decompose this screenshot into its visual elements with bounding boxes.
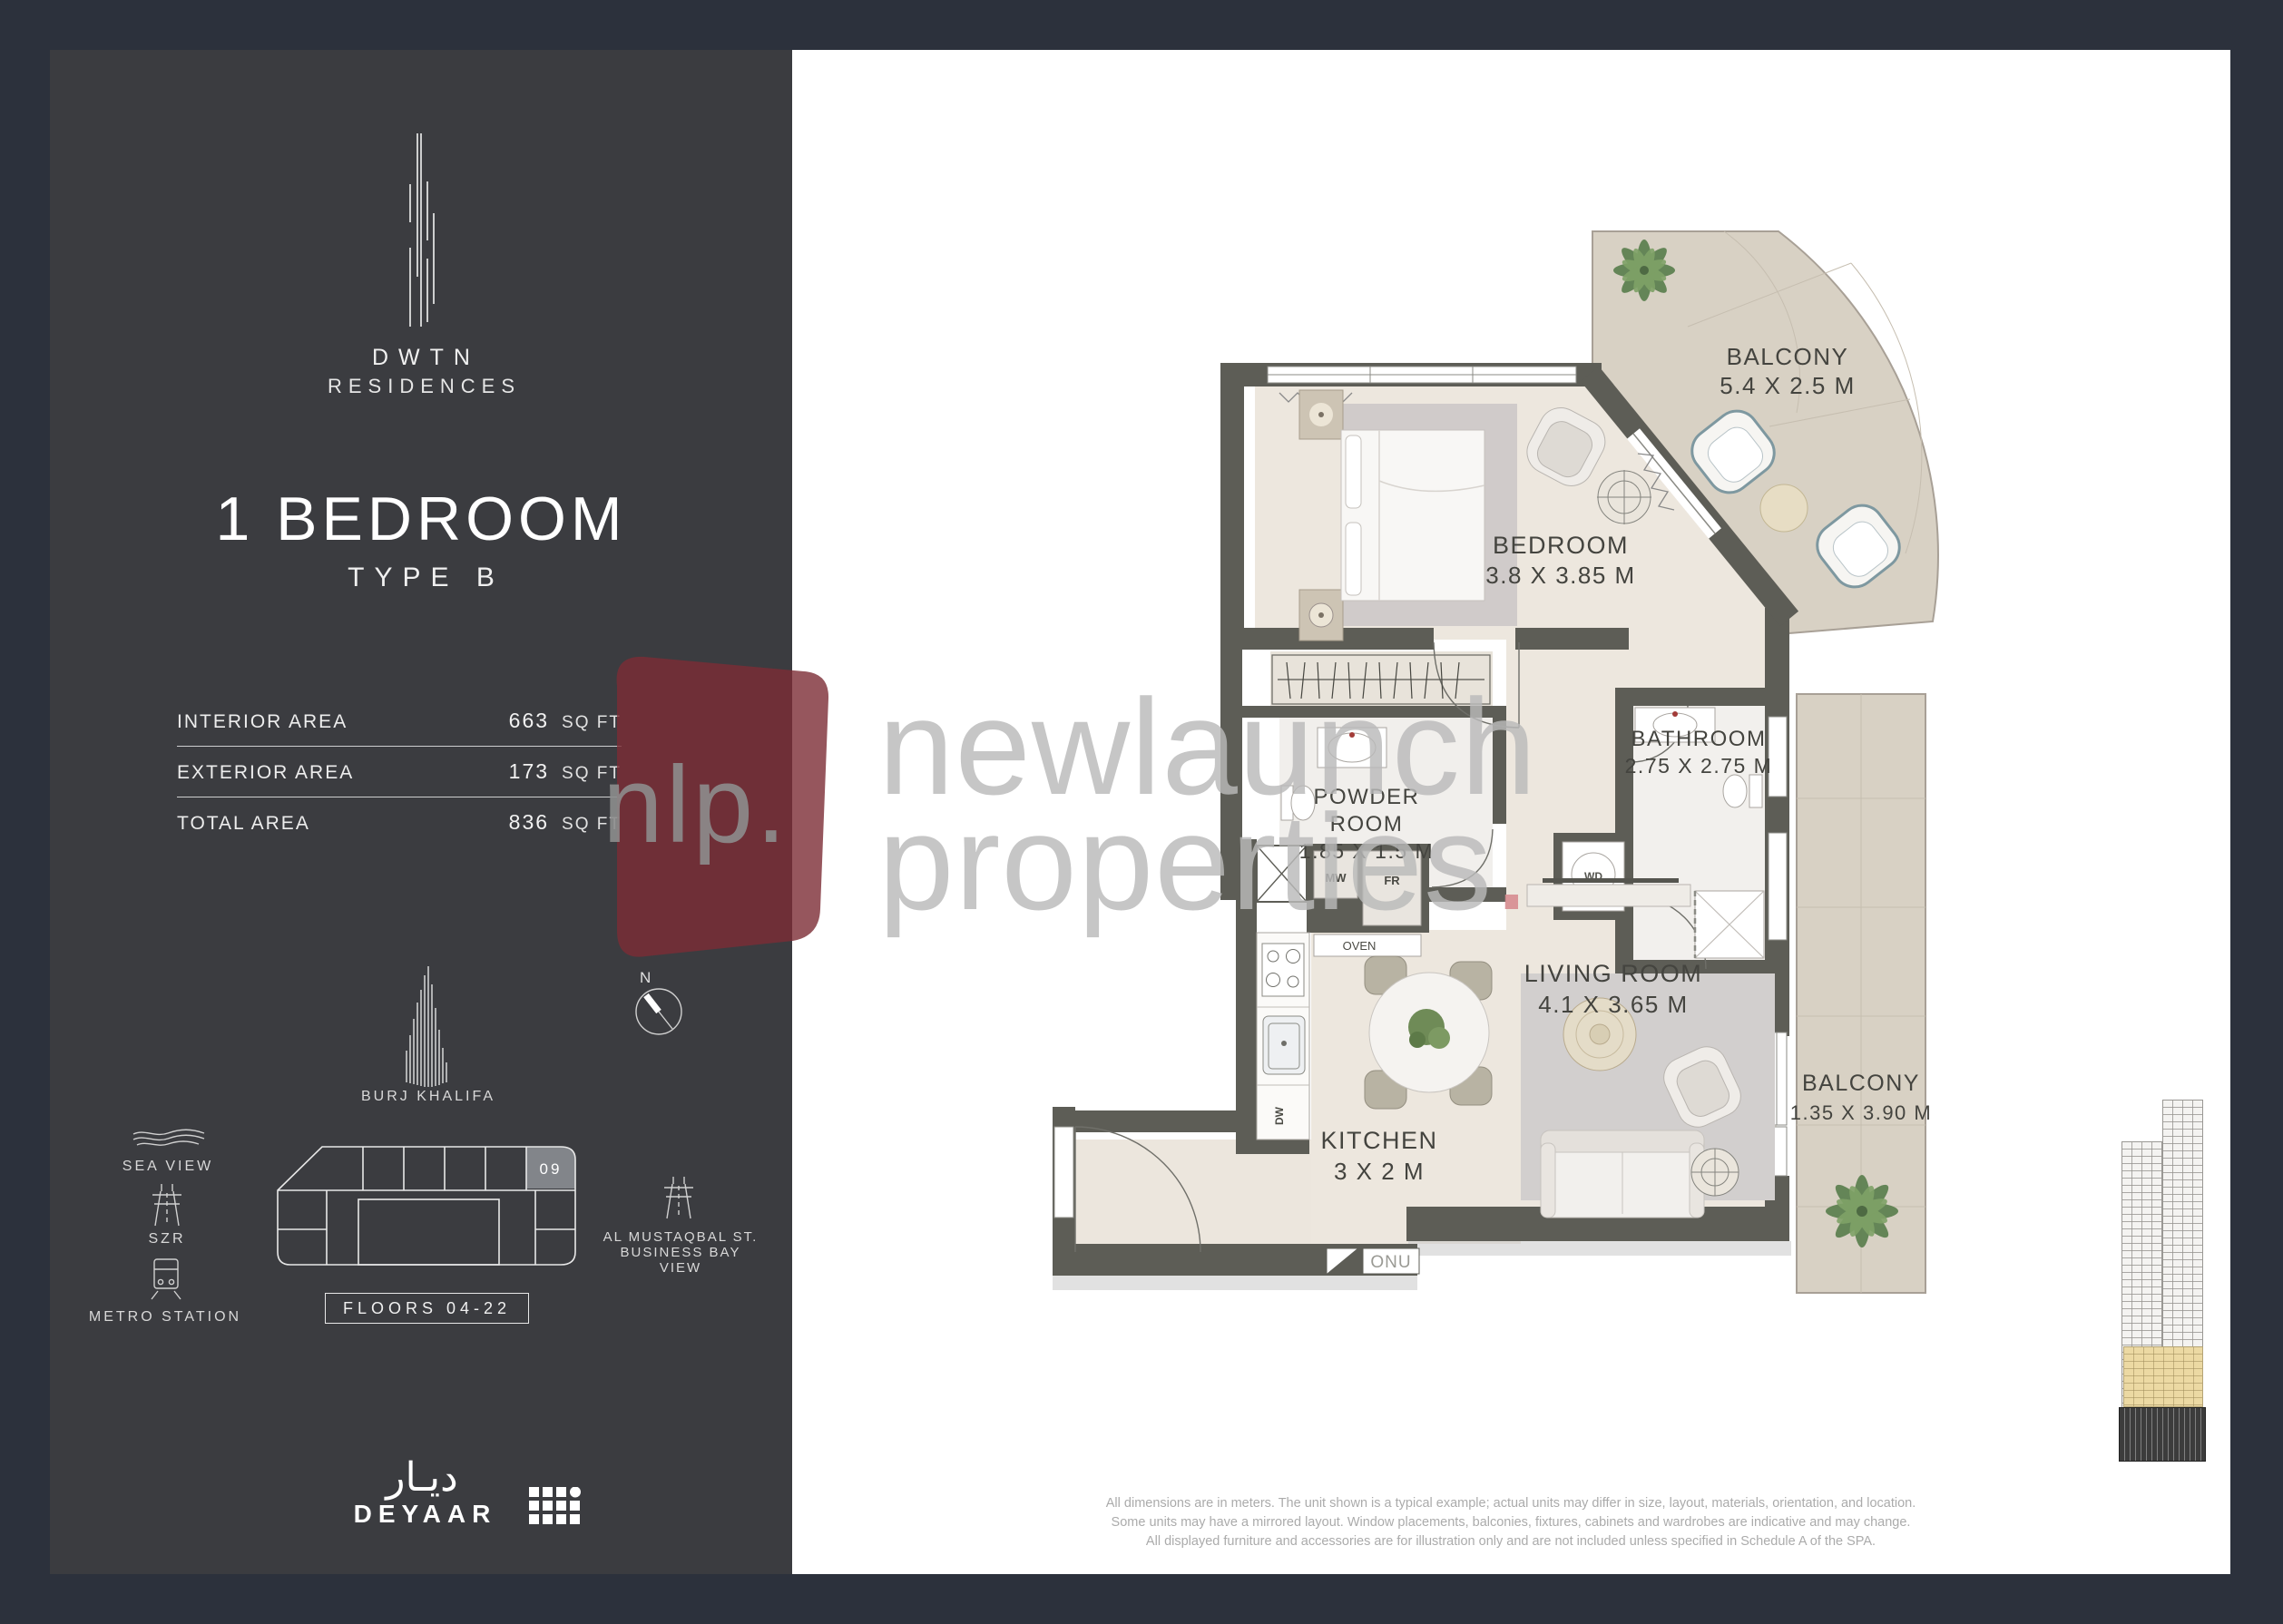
area-value: 173: [509, 759, 549, 783]
road-icon: [660, 1175, 698, 1220]
area-value: 663: [509, 709, 549, 732]
compass-icon: N: [622, 966, 694, 1048]
deyaar-grid-icon: [529, 1487, 582, 1529]
room-label: BATHROOM: [1631, 727, 1767, 751]
room-dims: 1.35 X 3.90 M: [1790, 1101, 1932, 1124]
brand-name: DWTN: [50, 345, 792, 371]
area-label: TOTAL AREA: [177, 813, 310, 835]
table-row: EXTERIOR AREA 173SQ FT: [177, 747, 622, 797]
watermark-red-dot: .: [1493, 786, 1532, 938]
metro-label: METRO STATION: [74, 1309, 256, 1326]
highlighted-floors: [2123, 1346, 2203, 1407]
tv-console: [1527, 885, 1690, 906]
room-label: LIVING ROOM: [1524, 960, 1703, 987]
road-view-label: AL MUSTAQBAL ST. BUSINESS BAY VIEW: [581, 1229, 780, 1276]
bed: [1341, 430, 1484, 601]
page-subtitle: TYPE B: [50, 563, 792, 593]
sofa: [1541, 1130, 1704, 1218]
area-label: INTERIOR AREA: [177, 711, 348, 733]
onu-label: ONU: [1370, 1253, 1411, 1272]
landmark-label: BURJ KHALIFA: [328, 1089, 528, 1105]
floor-plate-diagram: 09: [272, 1143, 581, 1275]
waves-icon: [132, 1128, 206, 1150]
room-label: KITCHEN: [1320, 1127, 1437, 1154]
room-dims: 3 X 2 M: [1334, 1158, 1425, 1185]
balcony-pouf: [1760, 484, 1808, 532]
developer-arabic: ديـار: [322, 1458, 522, 1498]
room-label: BALCONY: [1802, 1071, 1920, 1096]
disclaimer: All dimensions are in meters. The unit s…: [1057, 1494, 1965, 1551]
area-table: INTERIOR AREA 663SQ FT EXTERIOR AREA 173…: [177, 696, 622, 848]
room-dims: 5.4 X 2.5 M: [1720, 372, 1855, 399]
tv: [1543, 878, 1679, 883]
oven-label: OVEN: [1343, 939, 1377, 953]
room-dims: 4.1 X 3.65 M: [1538, 991, 1688, 1018]
dining-set: [1365, 956, 1492, 1109]
palm-tree: [1613, 240, 1675, 301]
page-title: 1 BEDROOM: [50, 484, 792, 554]
area-label: EXTERIOR AREA: [177, 762, 354, 784]
floors-label: FLOORS 04-22: [343, 1299, 511, 1318]
dw-label: DW: [1273, 1106, 1286, 1125]
area-value: 836: [509, 810, 549, 834]
newlaunch-watermark: newlaunch properties.: [878, 690, 1537, 920]
road-icon: [148, 1182, 186, 1228]
table-row: INTERIOR AREA 663SQ FT: [177, 696, 622, 747]
burj-khalifa-icon: [399, 964, 459, 1091]
dwtn-logo-icon: [367, 132, 475, 331]
brand-subname: RESIDENCES: [50, 375, 792, 398]
room-label: BALCONY: [1727, 343, 1849, 370]
developer-logo: ديـار DEYAAR: [322, 1458, 585, 1529]
table-row: TOTAL AREA 836SQ FT: [177, 797, 622, 848]
szr-label: SZR: [76, 1231, 258, 1247]
metro-icon: [148, 1257, 184, 1302]
sea-view-label: SEA VIEW: [77, 1159, 259, 1175]
room-dims: 2.75 X 2.75 M: [1625, 754, 1773, 778]
entry-floor: [1064, 1140, 1311, 1244]
tower-podium: [2119, 1407, 2206, 1462]
room-label: BEDROOM: [1493, 532, 1629, 559]
floors-badge: FLOORS 04-22: [325, 1293, 529, 1324]
brochure-page: DWTN RESIDENCES 1 BEDROOM TYPE B INTERIO…: [0, 0, 2283, 1624]
bath-wc: [1723, 775, 1747, 807]
tower-elevation: [2112, 1098, 2212, 1524]
room-dims: 3.8 X 3.85 M: [1485, 562, 1635, 589]
compass-n-label: N: [640, 969, 652, 986]
nlp-watermark-text: nlp.: [603, 742, 789, 867]
palm-tree: [1826, 1175, 1898, 1247]
developer-name: DEYAAR: [322, 1500, 522, 1529]
unit-badge: 09: [540, 1160, 563, 1178]
